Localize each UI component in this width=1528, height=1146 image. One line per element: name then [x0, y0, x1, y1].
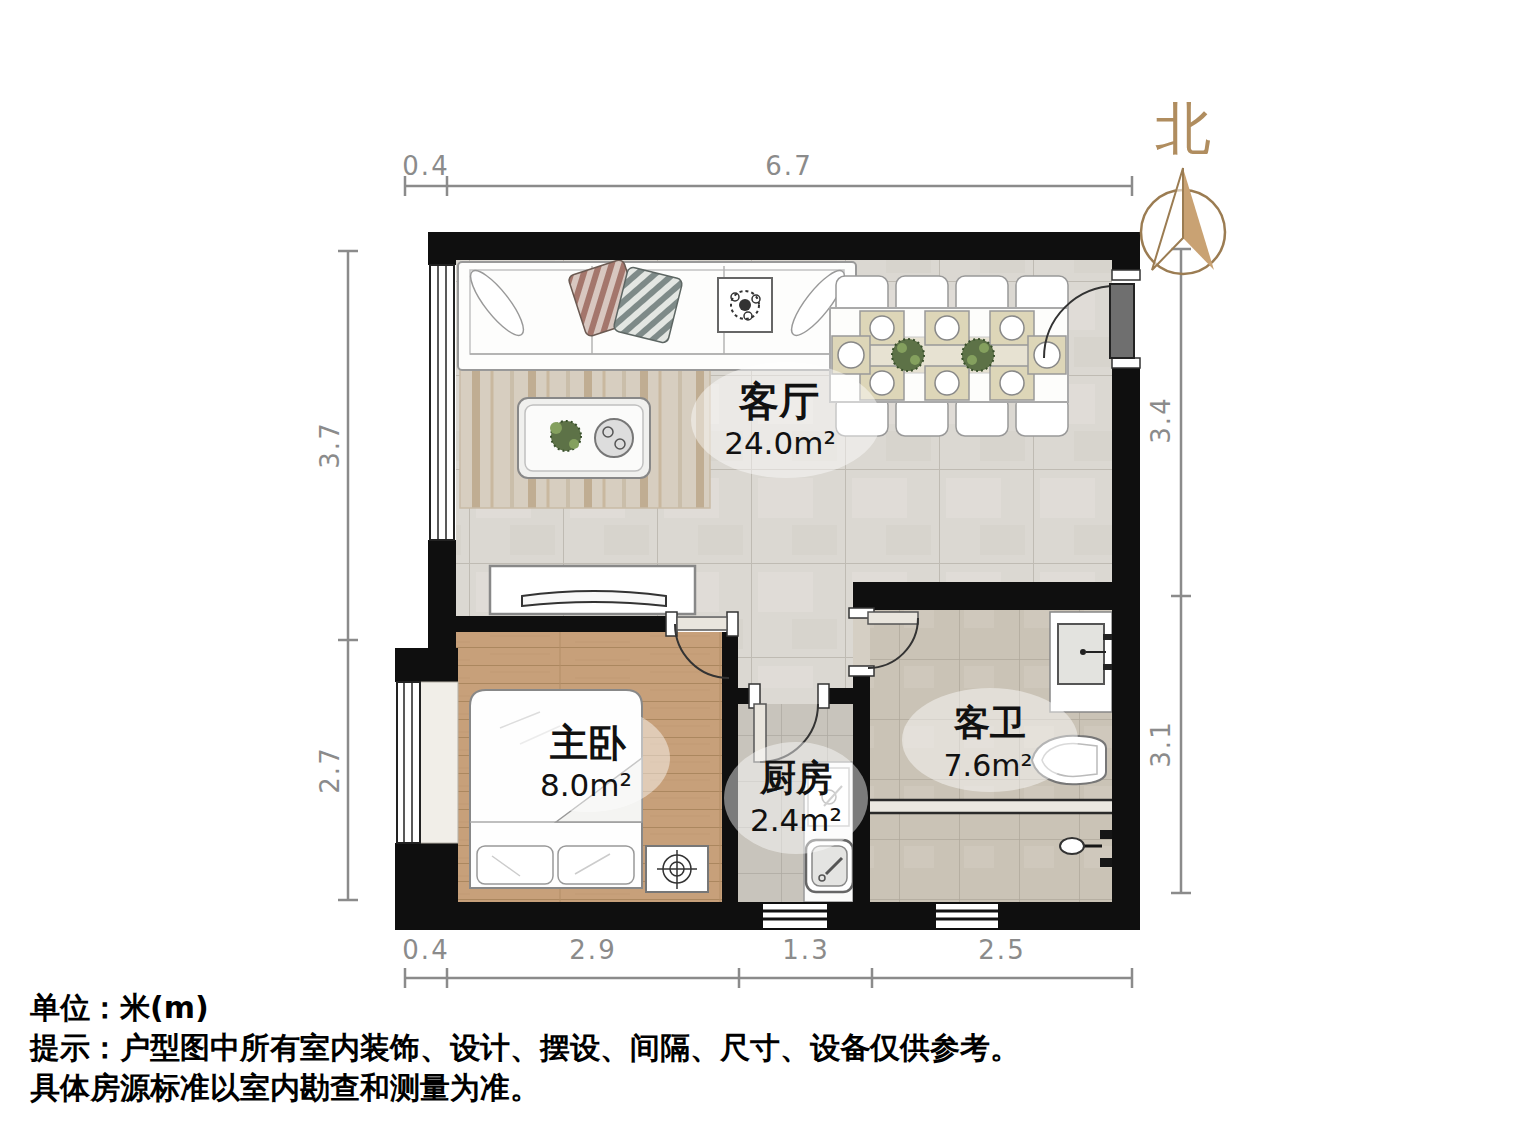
bay-window [397, 682, 458, 843]
floorplan-drawing [0, 0, 1528, 1146]
nightstand [646, 846, 708, 892]
footer-unit-line: 单位：米(m) [30, 988, 1500, 1028]
bathroom-label: 客卫 [954, 699, 1026, 748]
bedroom-area: 8.0m² [540, 767, 632, 803]
bathroom-vanity [1050, 612, 1115, 712]
dining-table [830, 308, 1068, 402]
dim-top-0: 0.4 [402, 151, 449, 181]
living-room-window [430, 265, 454, 540]
kitchen-area: 2.4m² [750, 802, 842, 838]
decor-plant-box [718, 278, 772, 332]
living-room-area: 24.0m² [724, 425, 836, 461]
north-compass-icon [1141, 168, 1225, 274]
kitchen-label: 厨房 [760, 754, 832, 803]
dim-bottom-0: 0.4 [402, 935, 449, 965]
north-label: 北 [1155, 92, 1211, 168]
living-room-label: 客厅 [739, 374, 819, 429]
dim-bottom-3: 2.5 [978, 935, 1025, 965]
dim-right-1: 3.1 [1146, 720, 1176, 767]
footer-note: 单位：米(m) 提示：户型图中所有室内装饰、设计、摆设、间隔、尺寸、设备仅供参考… [30, 988, 1500, 1108]
floorplan-canvas: 客厅 24.0m² 主卧 8.0m² 厨房 2.4m² 客卫 7.6m² 北 0… [0, 0, 1528, 1146]
footer-note-line1: 提示：户型图中所有室内装饰、设计、摆设、间隔、尺寸、设备仅供参考。 [30, 1028, 1500, 1068]
footer-note-line2: 具体房源标准以室内勘查和测量为准。 [30, 1068, 1500, 1108]
bathroom-area: 7.6m² [944, 748, 1033, 783]
dim-left-0: 3.7 [315, 421, 345, 468]
dim-left-1: 2.7 [315, 746, 345, 793]
shower-screen [870, 800, 1112, 813]
coffee-table [518, 398, 650, 478]
dim-bottom-2: 1.3 [782, 935, 829, 965]
tv-cabinet [490, 566, 695, 614]
dim-bottom-1: 2.9 [569, 935, 616, 965]
dim-top-1: 6.7 [765, 151, 812, 181]
dim-right-0: 3.4 [1146, 396, 1176, 443]
bedroom-label: 主卧 [550, 718, 626, 769]
